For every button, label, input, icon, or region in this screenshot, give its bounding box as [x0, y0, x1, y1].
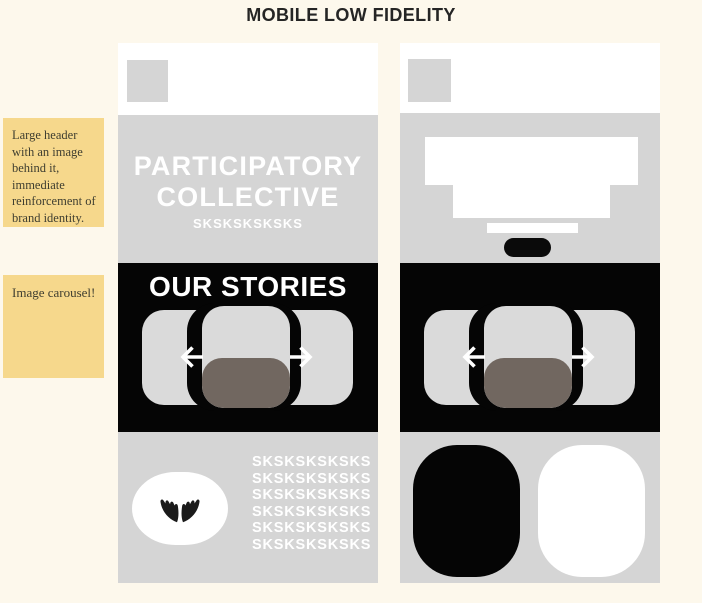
footer-text-line: SKSKSKSKSKS: [252, 471, 371, 488]
carousel-center-card[interactable]: [484, 306, 572, 408]
footer-card-light: [538, 445, 645, 577]
footer-text-line: SKSKSKSKSKS: [252, 537, 371, 554]
phone1-footer-section: SKSKSKSKSKS SKSKSKSKSKS SKSKSKSKSKS SKSK…: [118, 432, 378, 583]
open-hands-icon: [156, 492, 204, 525]
arrow-left-icon[interactable]: [462, 344, 486, 370]
stories-heading: OUR STORIES: [118, 263, 378, 303]
logo-placeholder-icon: [408, 59, 451, 102]
footer-text-line: SKSKSKSKSKS: [252, 487, 371, 504]
arrow-right-icon[interactable]: [289, 344, 313, 370]
subheadline-placeholder-block: [453, 185, 610, 218]
phone2-top-bar: [400, 43, 660, 113]
phone1-top-bar: [118, 43, 378, 115]
phone2-stories-section: [400, 263, 660, 432]
phone-mockup-2: [400, 43, 660, 583]
sticky-note-header: Large header with an image behind it, im…: [3, 118, 104, 227]
headline-placeholder-block: [425, 137, 638, 185]
footer-logo-blob: [132, 472, 228, 545]
sticky-note-carousel-text: Image carousel!: [12, 285, 95, 300]
footer-card-dark: [413, 445, 520, 577]
carousel-card-caption-area: [202, 358, 290, 408]
mobile-low-fidelity-page: MOBILE LOW FIDELITY Large header with an…: [0, 0, 702, 603]
footer-text-line: SKSKSKSKSKS: [252, 520, 371, 537]
phone-mockup-1: PARTICIPATORY COLLECTIVE SKSKSKSKSKS OUR…: [118, 43, 378, 583]
cta-button-placeholder[interactable]: [504, 238, 551, 257]
sticky-note-carousel: Image carousel!: [3, 275, 104, 378]
logo-placeholder-icon: [127, 60, 168, 102]
phone1-stories-section: OUR STORIES: [118, 263, 378, 432]
phone2-footer-section: [400, 432, 660, 583]
sticky-note-header-text: Large header with an image behind it, im…: [12, 128, 96, 225]
arrow-left-icon[interactable]: [180, 344, 204, 370]
brand-subline: SKSKSKSKSKS: [193, 216, 303, 231]
carousel-center-card[interactable]: [202, 306, 290, 408]
page-title: MOBILE LOW FIDELITY: [0, 5, 702, 26]
footer-text-line: SKSKSKSKSKS: [252, 454, 371, 471]
footer-text-line: SKSKSKSKSKS: [252, 504, 371, 521]
brand-name-line2: COLLECTIVE: [156, 182, 339, 213]
brand-name-line1: PARTICIPATORY: [134, 151, 363, 182]
arrow-right-icon[interactable]: [571, 344, 595, 370]
footer-placeholder-text: SKSKSKSKSKS SKSKSKSKSKS SKSKSKSKSKS SKSK…: [252, 454, 371, 553]
phone2-hero-header: [400, 113, 660, 263]
carousel-card-caption-area: [484, 358, 572, 408]
text-placeholder-bar: [487, 223, 578, 233]
phone1-hero-header: PARTICIPATORY COLLECTIVE SKSKSKSKSKS: [118, 115, 378, 263]
